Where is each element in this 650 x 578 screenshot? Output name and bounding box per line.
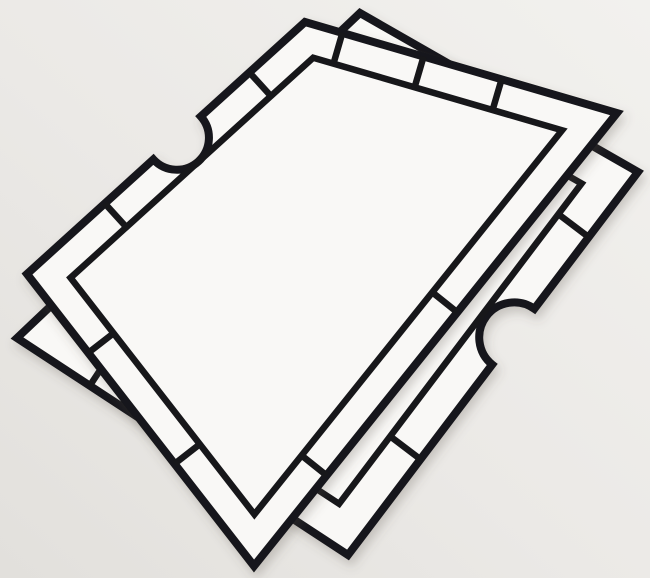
photo-two-frame-cutouts	[0, 0, 650, 578]
frame-cutouts-photo-canvas	[0, 0, 650, 578]
